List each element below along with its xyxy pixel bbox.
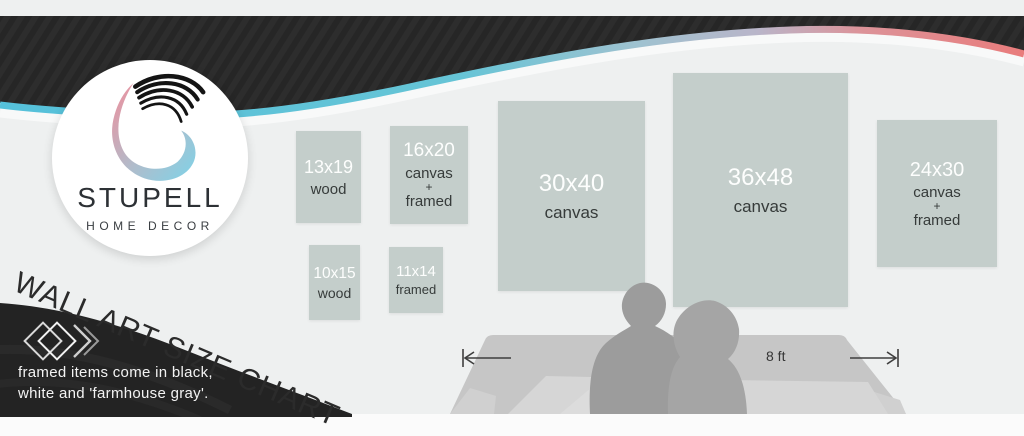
art-tile-16x20: 16x20 canvas + framed [390,126,468,224]
art-size-label: 30x40 [539,170,604,198]
art-size-label: 16x20 [403,140,455,162]
art-material-label: canvas [913,184,961,201]
infographic-canvas: STUPELL HOME DECOR WALL ART SIZE CHART f… [0,0,1024,436]
art-material-label: wood [318,285,351,301]
art-material-label-2: framed [914,212,961,229]
art-size-label: 36x48 [728,164,793,192]
framed-items-note-line2: white and 'farmhouse gray'. [18,383,213,404]
brand-logo-badge: STUPELL HOME DECOR [52,60,248,256]
art-size-label: 13x19 [304,157,353,178]
art-size-label: 10x15 [313,265,355,283]
plus-sign: + [425,183,432,192]
brand-subtitle: HOME DECOR [86,219,214,233]
art-tile-24x30: 24x30 canvas + framed [877,120,997,267]
measurement-label: 8 ft [766,348,785,364]
art-tile-30x40: 30x40 canvas [498,101,645,291]
width-measurement-line [455,344,905,372]
stupell-swoosh-icon [91,72,209,182]
framed-items-note-line1: framed items come in black, [18,362,213,383]
brand-name: STUPELL [77,182,223,214]
art-material-label: canvas [734,197,788,217]
plus-sign: + [933,202,940,211]
couch-couple-silhouette [430,270,930,414]
diamond-chevron-icon [18,314,104,368]
art-material-label: wood [311,181,347,198]
art-material-label-2: framed [406,193,453,210]
art-material-label: canvas [545,203,599,223]
art-tile-13x19: 13x19 wood [296,131,361,223]
art-tile-10x15: 10x15 wood [309,245,360,320]
floor-strip [0,414,1024,436]
framed-items-note: framed items come in black, white and 'f… [18,362,213,405]
art-size-label: 24x30 [910,159,965,182]
